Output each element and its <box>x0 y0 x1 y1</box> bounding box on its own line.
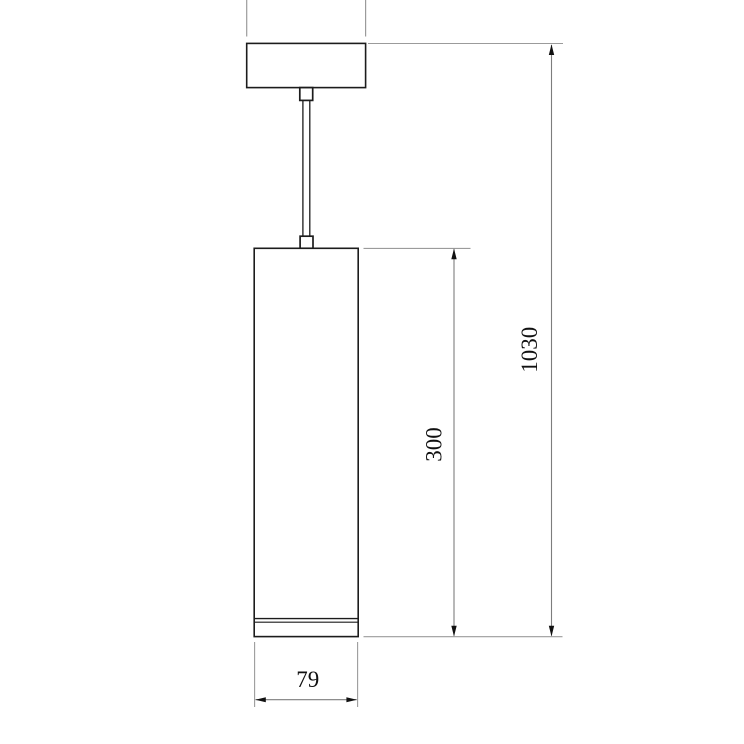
svg-text:300: 300 <box>421 427 446 462</box>
svg-text:79: 79 <box>296 667 319 692</box>
svg-text:1030: 1030 <box>517 327 542 373</box>
